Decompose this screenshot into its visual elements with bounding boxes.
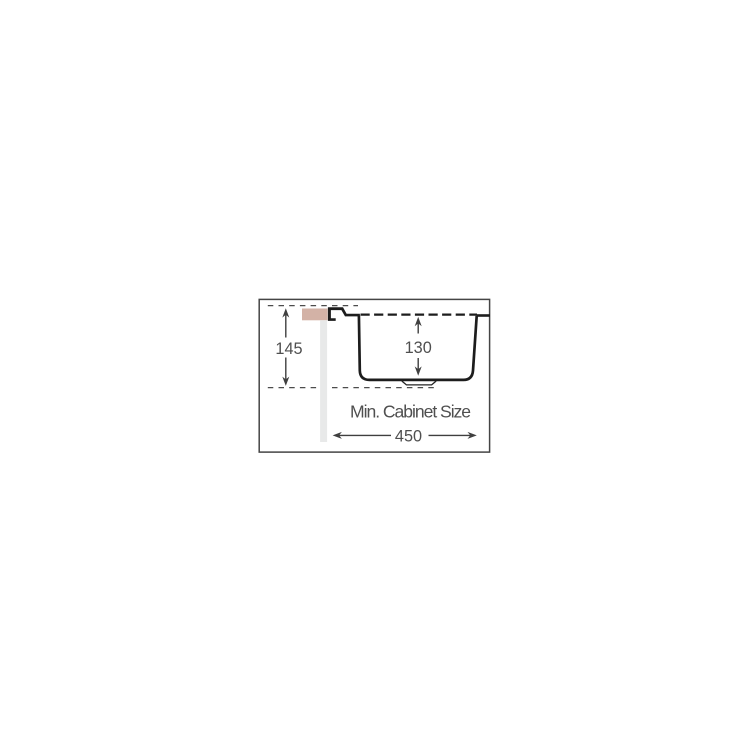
svg-text:130: 130	[405, 339, 432, 357]
svg-text:145: 145	[275, 340, 302, 358]
svg-text:Min. Cabinet Size: Min. Cabinet Size	[350, 401, 470, 421]
svg-text:450: 450	[395, 428, 422, 446]
